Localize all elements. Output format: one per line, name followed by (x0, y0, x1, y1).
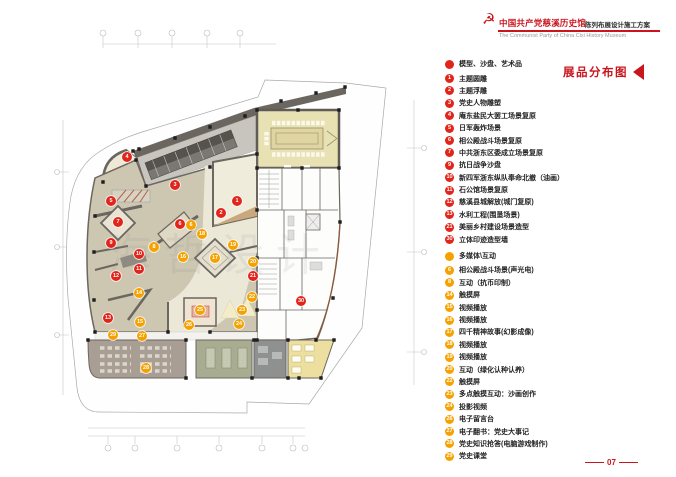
plan-marker-orange-17: 17 (210, 253, 220, 263)
plan-marker-orange-23: 23 (237, 305, 247, 315)
legend-item-label: 美丽乡村建设场景造型 (459, 222, 529, 232)
legend-item-label: 视频播放 (459, 352, 487, 362)
legend-item-multimedia-16: 16视频播放 (445, 314, 673, 326)
legend-item-number: 22 (445, 377, 454, 386)
header-underline (498, 30, 660, 32)
plan-marker-red-2: 2 (216, 208, 226, 218)
legend-item-models-3: 3党史人物雕塑 (445, 97, 673, 109)
legend-item-models-2: 2主题浮雕 (445, 85, 673, 97)
legend-section-label: 多媒体\互动 (459, 251, 496, 261)
legend-item-label: 水利工程(围垦场景) (459, 210, 520, 220)
plan-marker-red-9: 9 (106, 238, 116, 248)
plan-marker-orange-26: 26 (184, 320, 194, 330)
legend-item-number: 18 (445, 340, 454, 349)
legend-item-number: 28 (445, 439, 454, 448)
plan-marker-orange-15: 15 (135, 317, 145, 327)
legend-item-label: 多点触摸互动：沙画创作 (459, 389, 536, 399)
legend-item-label: 触摸屏 (459, 290, 480, 300)
legend-item-multimedia-22: 22触摸屏 (445, 376, 673, 388)
legend-item-label: 中共浙东区委成立场景复原 (459, 148, 543, 158)
legend-item-number: 24 (445, 402, 454, 411)
legend-item-multimedia-28: 28党史知识抢答(电脑游戏制作) (445, 438, 673, 450)
page-number-dash-left (585, 462, 604, 464)
legend-item-multimedia-15: 15视频播放 (445, 301, 673, 313)
plan-marker-orange-18: 18 (197, 229, 207, 239)
legend-item-number: 16 (445, 316, 454, 325)
legend-item-number: 6 (445, 136, 454, 145)
plan-marker-red-10: 10 (134, 249, 144, 259)
legend-section-dot (445, 60, 454, 69)
legend-item-label: 互动（抗币印制） (459, 278, 515, 288)
legend-item-number: 21 (445, 223, 454, 232)
legend-item-label: 电子翻书：党史大事记 (459, 427, 529, 437)
legend-item-label: 视频播放 (459, 340, 487, 350)
legend-item-label: 日军轰炸场景 (459, 123, 501, 133)
page-number: 07 (585, 458, 638, 467)
legend-item-models-4: 4庵东盐民大罢工场景复原 (445, 110, 673, 122)
legend-item-models-30: 30立体印迹造型墙 (445, 233, 673, 245)
legend-item-models-12: 12慈溪县城解放(城门复原) (445, 196, 673, 208)
legend-item-number: 2 (445, 86, 454, 95)
conference-room (257, 110, 339, 175)
plan-marker-orange-6: 6 (186, 220, 196, 230)
legend-item-label: 庵东盐民大罢工场景复原 (459, 111, 536, 121)
legend-item-multimedia-29: 29党史课堂 (445, 450, 673, 462)
plan-marker-orange-14: 14 (134, 288, 144, 298)
legend-item-number: 3 (445, 99, 454, 108)
plan-marker-orange-27: 27 (137, 331, 147, 341)
legend-item-multimedia-14: 14触摸屏 (445, 289, 673, 301)
corridor (95, 332, 257, 340)
legend-item-number: 26 (445, 415, 454, 424)
legend-item-number: 9 (445, 161, 454, 170)
legend-item-label: 相公殿战斗场景(声光电) (459, 265, 534, 275)
legend-list: 模型、沙盘、艺术品1主题圆雕2主题浮雕3党史人物雕塑4庵东盐民大罢工场景复原5日… (445, 58, 673, 463)
legend-item-models-5: 5日军轰炸场景 (445, 122, 673, 134)
plan-marker-orange-19: 19 (228, 240, 238, 250)
plan-marker-red-4: 4 (122, 152, 132, 162)
party-emblem-icon: ☭ (482, 12, 495, 27)
legend-item-multimedia-20: 20互动（绿化认种认养） (445, 363, 673, 375)
legend-item-label: 视频播放 (459, 303, 487, 313)
plan-marker-red-21: 21 (248, 271, 258, 281)
legend-item-number: 19 (445, 353, 454, 362)
legend-item-label: 党史课堂 (459, 451, 487, 461)
legend-item-models-13: 13水利工程(围垦场景) (445, 209, 673, 221)
legend-section-models: 模型、沙盘、艺术品 (445, 58, 673, 70)
legend-item-number: 13 (445, 210, 454, 219)
legend-item-number: 15 (445, 303, 454, 312)
plan-marker-orange-28: 28 (141, 363, 151, 373)
page-number-value: 07 (607, 458, 616, 467)
legend-item-label: 立体印迹造型墙 (459, 235, 508, 245)
plan-marker-orange-29: 29 (108, 330, 118, 340)
plan-marker-red-13: 13 (103, 313, 113, 323)
plan-marker-red-5: 5 (106, 196, 116, 206)
legend-item-label: 相公殿战斗场景复原 (459, 136, 522, 146)
legend-item-number: 17 (445, 328, 454, 337)
plan-marker-red-12: 12 (111, 271, 121, 281)
legend-item-label: 互动（绿化认种认养） (459, 365, 529, 375)
legend-item-models-10: 10新四军浙东纵队奉命北撤（油画） (445, 172, 673, 184)
legend-item-label: 电子留言台 (459, 414, 494, 424)
page-title: 中国共产党慈溪历史馆 (499, 17, 586, 29)
legend-item-multimedia-8: 8互动（抗币印制） (445, 277, 673, 289)
legend-item-label: 党史人物雕塑 (459, 98, 501, 108)
legend-item-number: 11 (445, 186, 454, 195)
page-number-dash-right (619, 462, 638, 464)
page-title-en: The Communist Party of China Cixi Histor… (499, 33, 626, 39)
legend-item-number: 10 (445, 173, 454, 182)
legend-item-number: 20 (445, 365, 454, 374)
plan-marker-orange-8: 8 (149, 242, 159, 252)
plan-marker-red-11: 11 (134, 264, 144, 274)
legend-item-number: 6 (445, 266, 454, 275)
legend-item-number: 29 (445, 452, 454, 461)
legend-item-multimedia-23: 23多点触摸互动：沙画创作 (445, 388, 673, 400)
legend-item-models-9: 9抗日战争沙盘 (445, 159, 673, 171)
classroom (88, 340, 186, 378)
legend-item-models-21: 21美丽乡村建设场景造型 (445, 221, 673, 233)
plan-marker-red-7: 7 (113, 217, 123, 227)
legend-item-number: 30 (445, 235, 454, 244)
legend-item-label: 党史知识抢答(电脑游戏制作) (459, 439, 548, 449)
legend-item-number: 12 (445, 198, 454, 207)
legend-item-models-1: 1主题圆雕 (445, 72, 673, 84)
multipurpose-room (196, 340, 252, 378)
page-subtitle: 陈列布展设计施工方案 (585, 19, 650, 29)
legend-item-models-6: 6相公殿战斗场景复原 (445, 134, 673, 146)
legend-item-number: 5 (445, 124, 454, 133)
legend-item-multimedia-19: 19视频播放 (445, 351, 673, 363)
legend-item-multimedia-26: 26电子留言台 (445, 413, 673, 425)
legend-item-label: 抗日战争沙盘 (459, 160, 501, 170)
legend-section-multimedia: 多媒体\互动 (445, 250, 673, 262)
plan-marker-orange-20: 20 (248, 257, 258, 267)
legend-item-label: 触摸屏 (459, 377, 480, 387)
legend-item-number: 23 (445, 390, 454, 399)
legend-item-models-7: 7中共浙东区委成立场景复原 (445, 147, 673, 159)
plan-marker-orange-22: 22 (247, 292, 257, 302)
legend-section-dot (445, 252, 454, 261)
legend-item-models-11: 11石公馆场景复原 (445, 184, 673, 196)
legend-item-multimedia-27: 27电子翻书：党史大事记 (445, 425, 673, 437)
legend-item-label: 主题浮雕 (459, 86, 487, 96)
legend-item-label: 投影视频 (459, 402, 487, 412)
legend-item-multimedia-24: 24投影视频 (445, 401, 673, 413)
legend-item-number: 8 (445, 278, 454, 287)
legend-item-number: 14 (445, 291, 454, 300)
plan-marker-red-1: 1 (232, 196, 242, 206)
proposal-page: 海哲设计 12345679101112132130681415161718192… (0, 0, 676, 477)
plan-marker-red-30: 30 (296, 296, 306, 306)
legend-item-label: 慈溪县城解放(城门复原) (459, 197, 534, 207)
plan-marker-orange-16: 16 (178, 252, 188, 262)
legend-item-label: 主题圆雕 (459, 74, 487, 84)
legend-item-multimedia-18: 18视频播放 (445, 339, 673, 351)
office-gray (254, 340, 286, 378)
legend-item-multimedia-6: 6相公殿战斗场景(声光电) (445, 264, 673, 276)
legend-section-label: 模型、沙盘、艺术品 (459, 59, 522, 69)
plan-marker-red-3: 3 (170, 180, 180, 190)
legend-item-label: 四千精神故事(幻影成像) (459, 327, 534, 337)
floor-plan: 海哲设计 (0, 0, 440, 477)
legend-item-number: 7 (445, 148, 454, 157)
legend-item-label: 视频播放 (459, 315, 487, 325)
legend-item-label: 新四军浙东纵队奉命北撤（油画） (459, 173, 564, 183)
legend-item-label: 石公馆场景复原 (459, 185, 508, 195)
legend-item-multimedia-17: 17四千精神故事(幻影成像) (445, 326, 673, 338)
legend-item-number: 27 (445, 427, 454, 436)
plan-marker-orange-24: 24 (234, 319, 244, 329)
legend-item-number: 1 (445, 74, 454, 83)
plan-marker-orange-25: 25 (195, 305, 205, 315)
plan-marker-red-6: 6 (175, 219, 185, 229)
legend-item-number: 4 (445, 111, 454, 120)
